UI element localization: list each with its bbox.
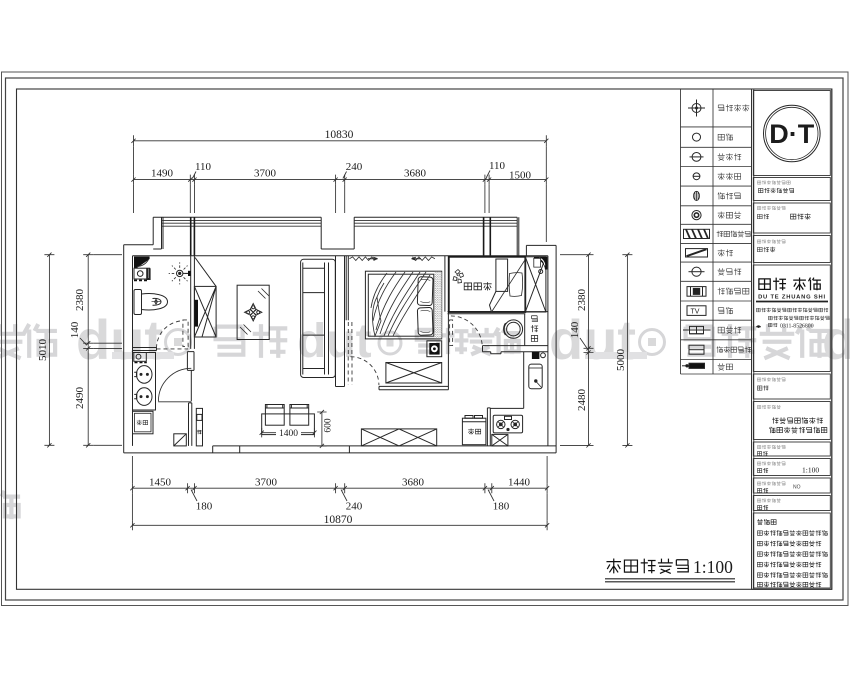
svg-text:D·T: D·T — [769, 119, 814, 149]
svg-text:140: 140 — [69, 321, 81, 338]
svg-text:1:100: 1:100 — [693, 557, 733, 577]
svg-text:5000: 5000 — [615, 349, 627, 372]
svg-text:2490: 2490 — [74, 387, 86, 410]
svg-text:110: 110 — [489, 160, 506, 172]
svg-text:3680: 3680 — [404, 168, 427, 180]
svg-text:d: d — [822, 308, 850, 371]
svg-text:180: 180 — [196, 501, 213, 513]
svg-text:240: 240 — [346, 161, 363, 173]
svg-text:dut: dut — [297, 315, 372, 368]
svg-text:2480: 2480 — [576, 389, 588, 412]
svg-text:1500: 1500 — [509, 170, 532, 182]
svg-text:DU TE ZHUANG SHI: DU TE ZHUANG SHI — [758, 295, 826, 301]
svg-text:5010: 5010 — [37, 339, 49, 362]
svg-text:1400: 1400 — [279, 429, 298, 439]
svg-text:3700: 3700 — [254, 168, 277, 180]
svg-text:1450: 1450 — [149, 477, 172, 489]
svg-text:1490: 1490 — [151, 168, 174, 180]
svg-text:10870: 10870 — [324, 514, 353, 526]
svg-text:1:100: 1:100 — [802, 466, 819, 475]
svg-text:240: 240 — [346, 501, 363, 513]
svg-text:1440: 1440 — [508, 477, 531, 489]
svg-text:0311-8526800: 0311-8526800 — [780, 324, 814, 330]
svg-text:110: 110 — [195, 161, 212, 173]
svg-text:180: 180 — [493, 501, 510, 513]
svg-text:dut: dut — [76, 308, 163, 371]
svg-text:140: 140 — [569, 321, 581, 338]
svg-text:NO: NO — [793, 485, 801, 491]
svg-text:3700: 3700 — [255, 477, 278, 489]
svg-text:TV: TV — [691, 308, 700, 315]
svg-text:600: 600 — [324, 418, 334, 433]
svg-text:10830: 10830 — [325, 129, 354, 141]
svg-text:2380: 2380 — [74, 289, 86, 312]
svg-text:2380: 2380 — [576, 289, 588, 312]
svg-text:3680: 3680 — [402, 477, 425, 489]
